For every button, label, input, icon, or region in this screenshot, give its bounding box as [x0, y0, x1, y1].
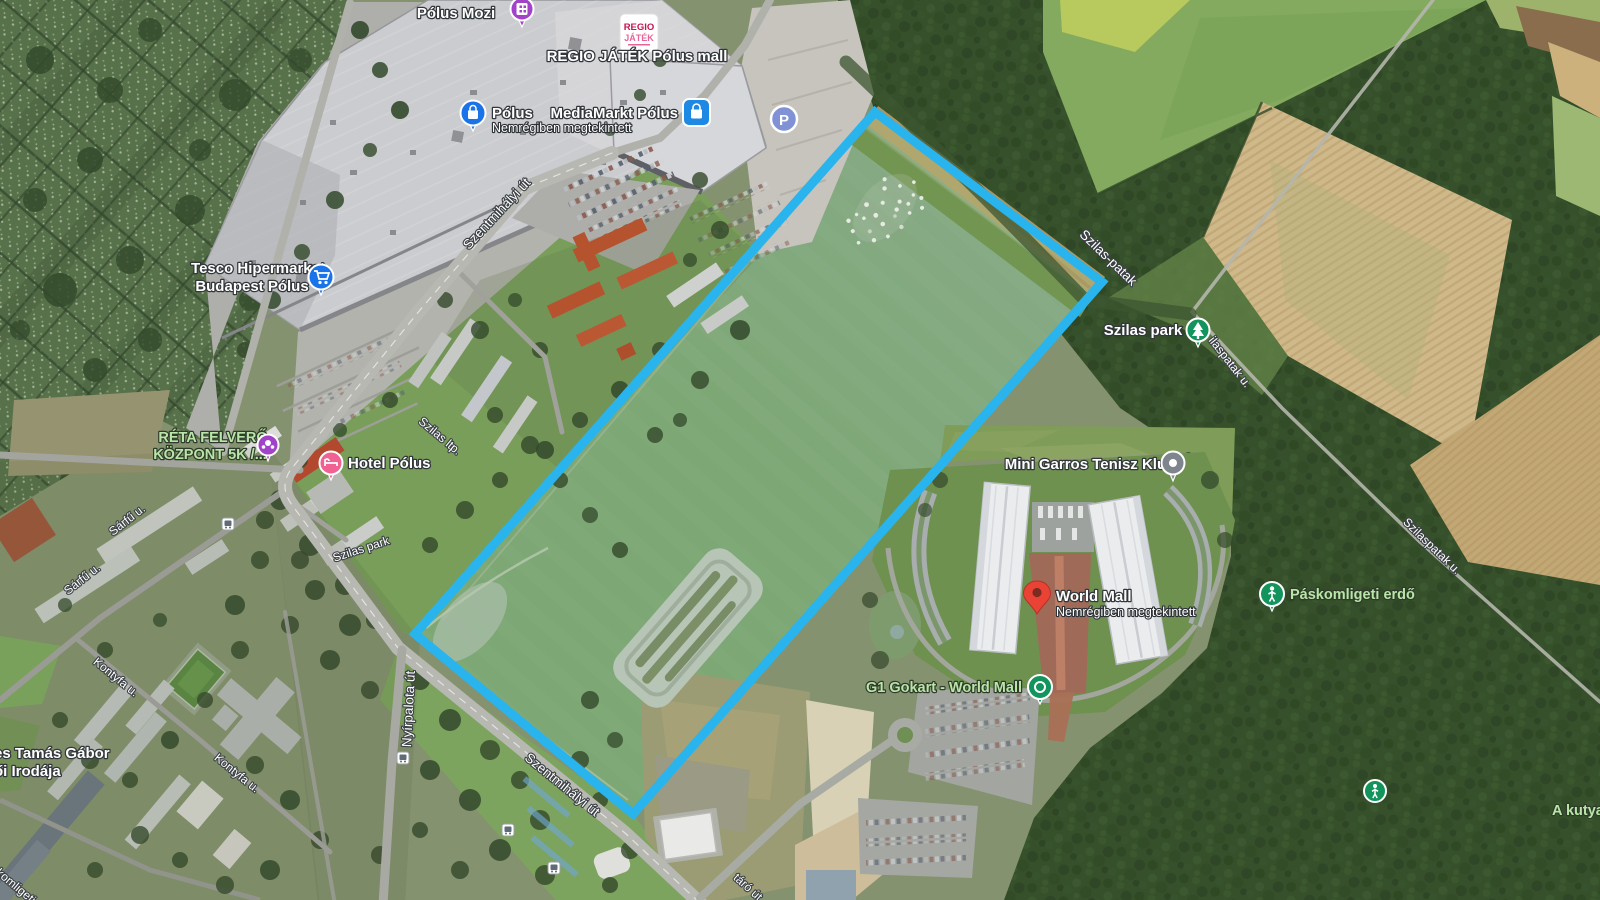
svg-text:Mini Garros Tenisz Klub: Mini Garros Tenisz Klub [1005, 456, 1176, 473]
svg-text:World Mall: World Mall [1056, 588, 1132, 605]
svg-text:KÖZPONT 5K /...: KÖZPONT 5K /... [153, 446, 267, 463]
svg-text:JÁTÉK: JÁTÉK [624, 33, 654, 43]
svg-text:Tesco Hipermarket: Tesco Hipermarket [191, 260, 325, 277]
svg-text:es Tamás Gábor: es Tamás Gábor [0, 745, 110, 762]
svg-text:Szilas park: Szilas park [1104, 322, 1183, 339]
svg-text:Hotel Pólus: Hotel Pólus [348, 455, 431, 472]
svg-text:MediaMarkt Pólus: MediaMarkt Pólus [550, 105, 678, 122]
svg-text:A kutya: A kutya [1552, 803, 1600, 819]
svg-text:P: P [779, 112, 789, 129]
svg-text:G1 Gokart - World Mall: G1 Gokart - World Mall [866, 680, 1022, 696]
svg-text:Nemrégiben megtekintett: Nemrégiben megtekintett [1056, 605, 1196, 619]
svg-text:RÉTA FELVERŐ: RÉTA FELVERŐ [158, 428, 267, 446]
svg-text:Budapest Pólus: Budapest Pólus [195, 278, 308, 295]
svg-text:REGIO: REGIO [624, 22, 655, 33]
svg-text:Pólus Mozi: Pólus Mozi [417, 5, 495, 22]
svg-text:REGIO JÁTÉK Pólus mall: REGIO JÁTÉK Pólus mall [547, 48, 728, 65]
svg-text:Pólus: Pólus [492, 105, 533, 122]
svg-text:Nemrégiben megtekintett: Nemrégiben megtekintett [492, 121, 632, 135]
svg-text:Páskomligeti erdő: Páskomligeti erdő [1290, 587, 1415, 603]
svg-text:ői Irodája: ői Irodája [0, 763, 61, 780]
